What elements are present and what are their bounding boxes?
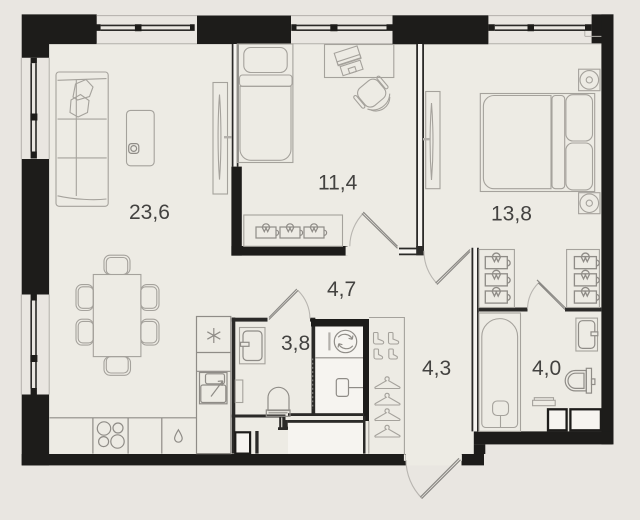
svg-text:23,6: 23,6 [129,201,170,224]
svg-text:13,8: 13,8 [491,202,532,225]
svg-text:4,7: 4,7 [327,278,356,301]
svg-text:3,8: 3,8 [281,332,310,355]
svg-text:4,0: 4,0 [532,357,561,380]
svg-text:4,3: 4,3 [422,357,451,380]
svg-text:11,4: 11,4 [318,172,358,195]
